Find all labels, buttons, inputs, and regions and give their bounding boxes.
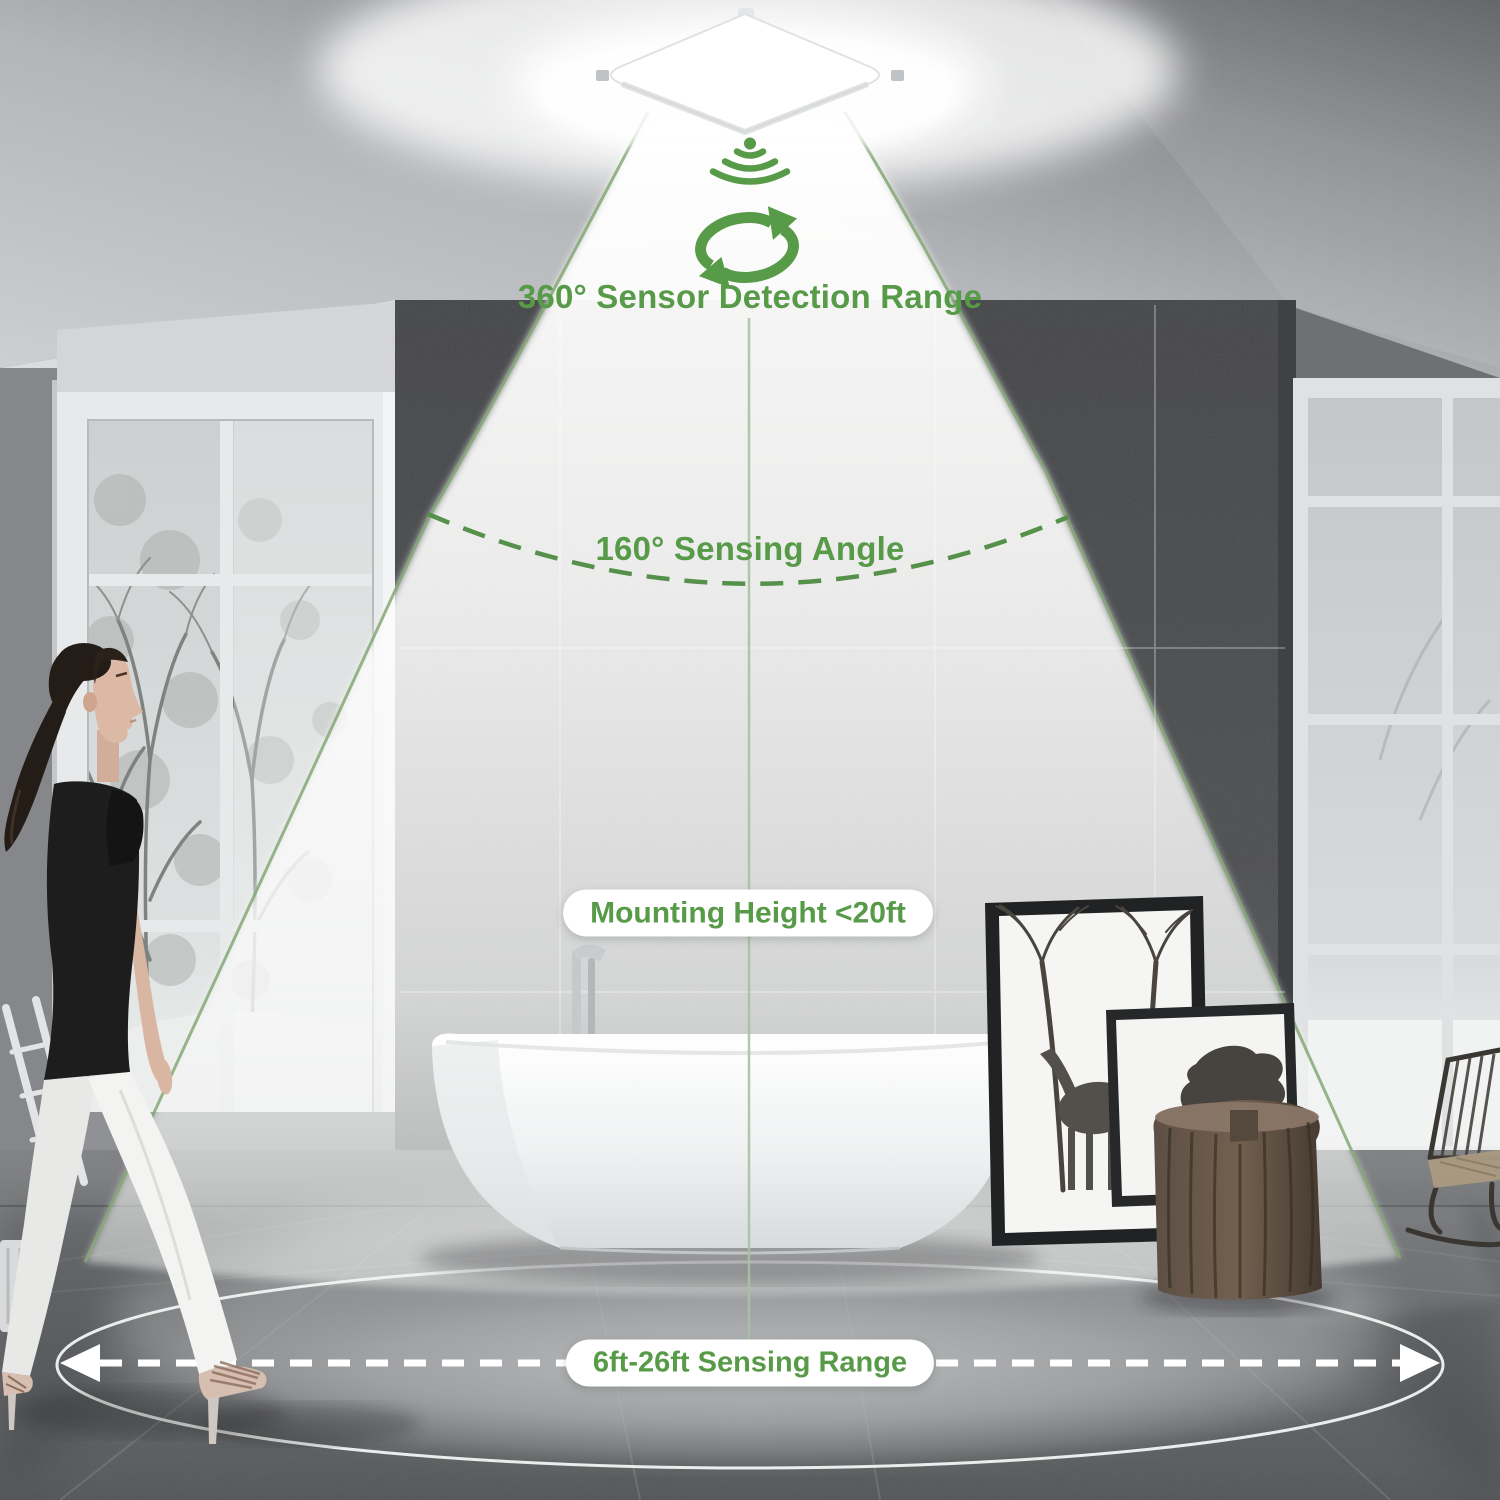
mounting-height-badge: Mounting Height <20ft xyxy=(563,890,933,937)
sensing-angle-label: 160° Sensing Angle xyxy=(596,530,905,568)
detection-range-label: 360° Sensor Detection Range xyxy=(518,278,982,316)
right-window xyxy=(1293,378,1500,1206)
product-feature-scene: 360° Sensor Detection Range 160° Sensing… xyxy=(0,0,1500,1500)
sensing-range-badge: 6ft-26ft Sensing Range xyxy=(566,1340,934,1387)
wood-stump xyxy=(1140,1100,1336,1314)
